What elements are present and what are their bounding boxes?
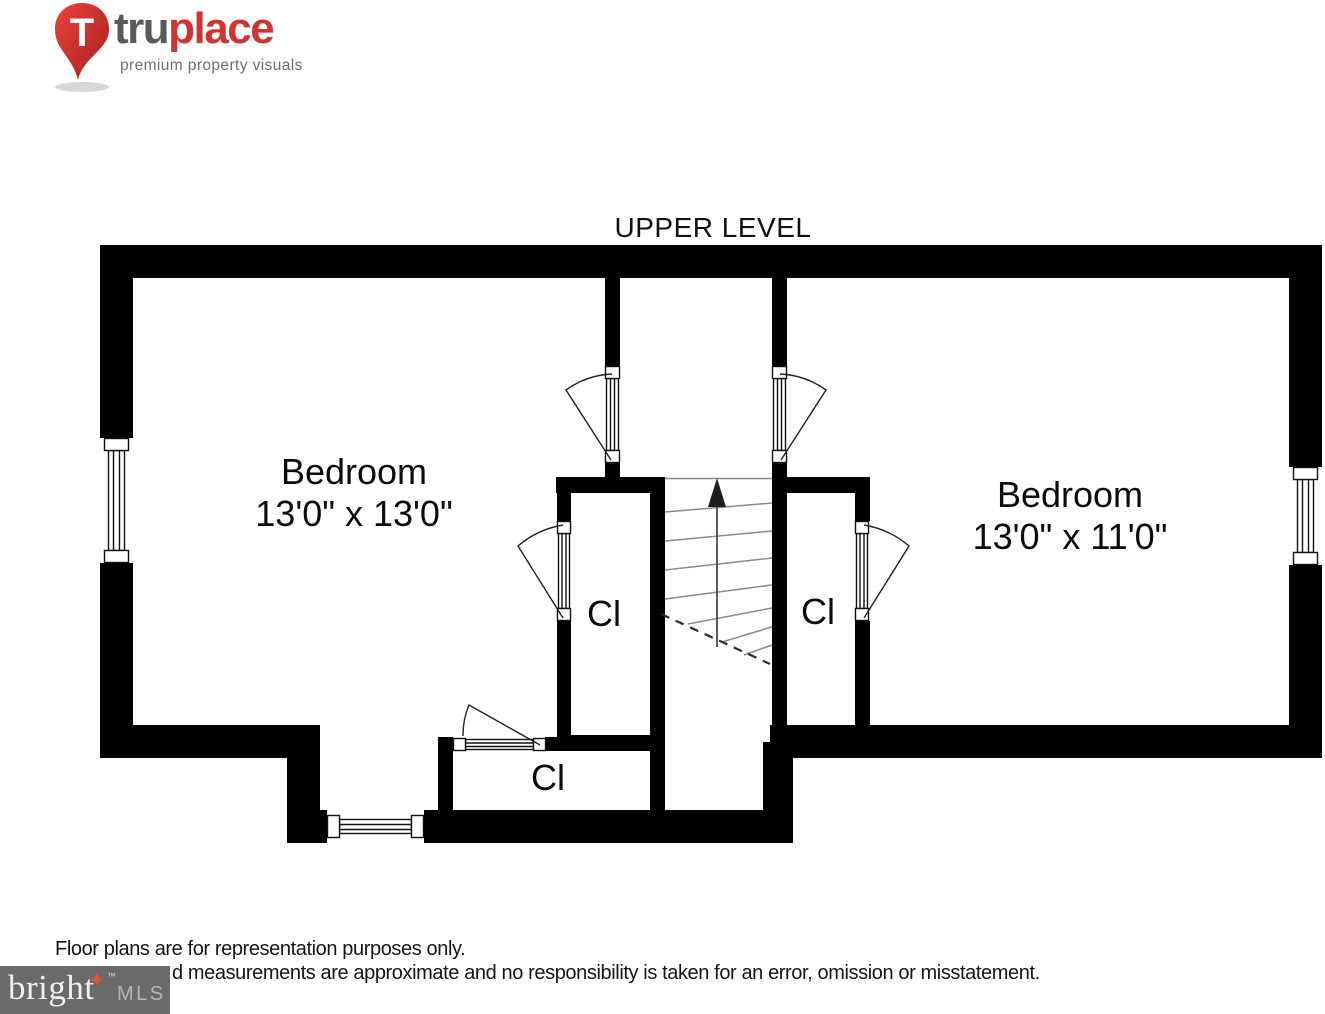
- door-symbol: [454, 705, 546, 751]
- window-glass: [340, 820, 412, 834]
- room-label-closet-bottom: Cl: [518, 757, 578, 799]
- room-label-bedroom-left: Bedroom: [204, 451, 504, 493]
- stairs-up-arrow-icon: [708, 478, 726, 507]
- window-symbol: [105, 439, 129, 563]
- door-leaf: [774, 379, 786, 451]
- brightmls-brand: bright: [8, 968, 95, 1008]
- door-frame: [454, 739, 466, 751]
- stair-tread: [665, 585, 772, 599]
- door-symbol: [518, 522, 571, 621]
- door-leaf: [559, 534, 570, 609]
- disclaimer-line-2: d measurements are approximate and no re…: [172, 962, 1040, 985]
- room-label-closet-right: Cl: [788, 591, 848, 633]
- staircase: [661, 478, 772, 664]
- door-frame: [606, 451, 620, 463]
- window-frame: [412, 816, 424, 838]
- stair-winder-tread: [722, 627, 772, 642]
- door-leaf: [607, 379, 619, 451]
- door-frame: [773, 451, 787, 463]
- trademark-symbol: ™: [107, 971, 116, 981]
- door-frame: [773, 367, 787, 379]
- floor-plan-page: T truplace premium property visuals UPPE…: [0, 0, 1325, 1014]
- door-frame: [558, 522, 571, 534]
- room-dims-bedroom-left: 13'0" x 13'0": [204, 493, 504, 535]
- stair-winder-tread: [744, 645, 772, 655]
- door-frame: [558, 609, 571, 621]
- door-symbol: [566, 367, 620, 463]
- door-swing-arc: [780, 374, 826, 460]
- window-frame: [1294, 553, 1318, 565]
- star-icon: ✦: [88, 968, 106, 993]
- window-frame: [105, 551, 129, 563]
- door-frame: [606, 367, 620, 379]
- door-leaf: [857, 534, 868, 609]
- window-frame: [328, 816, 340, 838]
- brightmls-suffix: MLS: [117, 983, 166, 1006]
- door-swing-arc: [864, 525, 909, 618]
- door-symbol: [773, 367, 827, 463]
- stair-tread: [665, 531, 772, 541]
- stair-tread: [665, 558, 772, 570]
- window-glass: [109, 451, 125, 551]
- room-dims-bedroom-right: 13'0" x 11'0": [920, 516, 1220, 558]
- door-swing-arc: [566, 374, 612, 460]
- room-label-closet-left: Cl: [574, 593, 634, 635]
- door-frame: [856, 522, 869, 534]
- window-symbol: [328, 816, 424, 838]
- door-symbol: [856, 522, 910, 621]
- door-leaf: [466, 740, 534, 750]
- brightmls-watermark: bright ✦ ™ MLS: [0, 966, 170, 1014]
- stair-cut-line: [661, 614, 770, 664]
- door-swing-arc: [518, 525, 563, 618]
- window-symbol: [1294, 468, 1318, 565]
- window-glass: [1298, 480, 1314, 553]
- disclaimer-line-1: Floor plans are for representation purpo…: [55, 938, 465, 961]
- room-label-bedroom-right: Bedroom: [920, 474, 1220, 516]
- window-frame: [1294, 468, 1318, 480]
- stair-winder-tread: [688, 608, 772, 624]
- window-frame: [105, 439, 129, 451]
